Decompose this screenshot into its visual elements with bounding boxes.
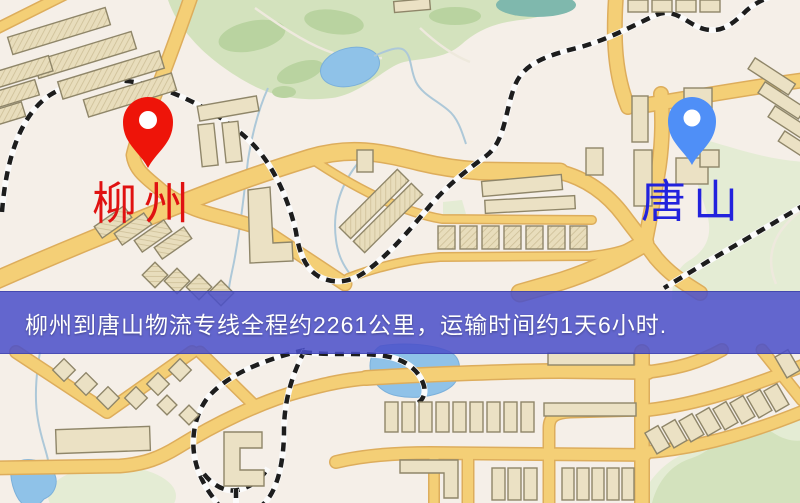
city-label-liuzhou: 柳州 [92, 181, 196, 226]
building-blocks [0, 0, 800, 500]
route-info-text: 柳州到唐山物流专线全程约2261公里，运输时间约1天6小时. [0, 306, 667, 340]
map-canvas[interactable]: 柳州 唐山 柳州到唐山物流专线全程约2261公里，运输时间约1天6小时. [0, 0, 800, 503]
route-info-banner: 柳州到唐山物流专线全程约2261公里，运输时间约1天6小时. [0, 291, 800, 354]
city-label-tangshan: 唐山 [641, 179, 745, 224]
